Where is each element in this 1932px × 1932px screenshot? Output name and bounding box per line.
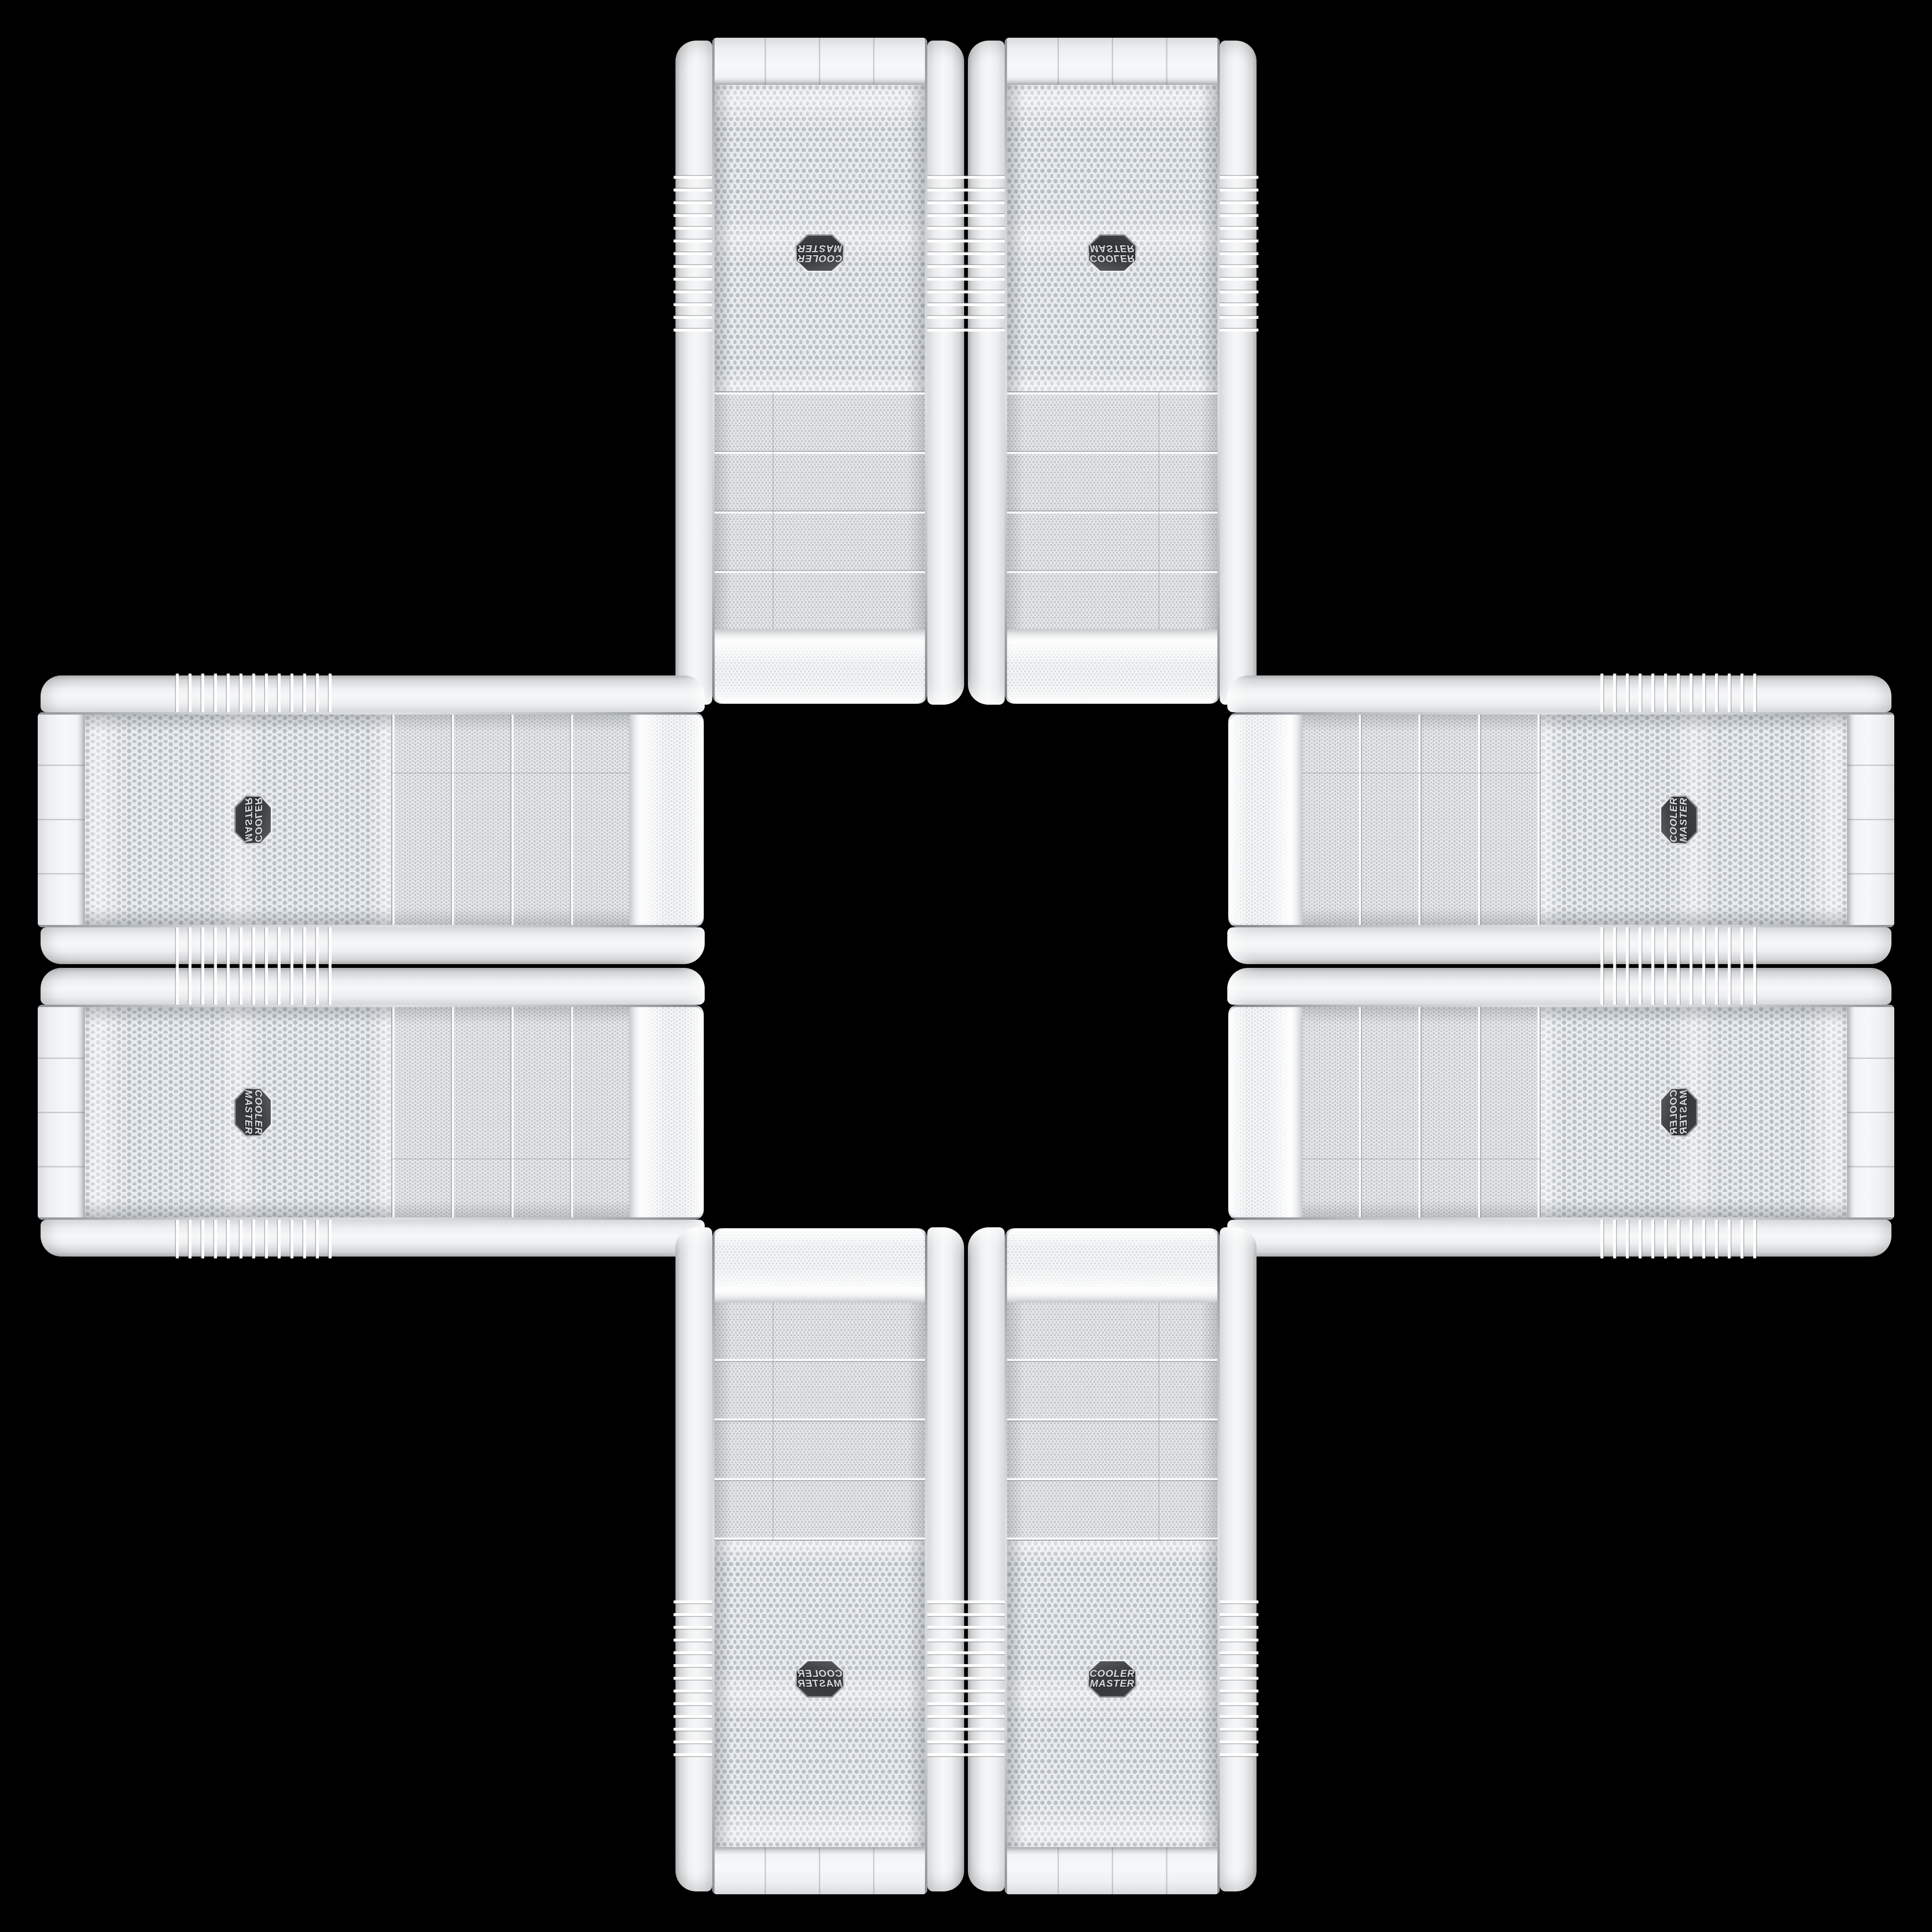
- side-rail-right: [675, 41, 712, 705]
- rail-grip-ribs: [1594, 674, 1762, 714]
- drive-bay-mesh: [391, 1007, 629, 1217]
- rail-grip-ribs: [170, 925, 338, 966]
- foot-band: [1847, 1005, 1894, 1220]
- mesh-top-cap: [628, 715, 704, 925]
- badge-text-line1: COOLER: [1090, 253, 1135, 263]
- badge-text-line2: MASTER: [1679, 1090, 1689, 1135]
- foot-band: [1005, 1847, 1220, 1894]
- cooler-master-badge: COOLER MASTER: [1661, 797, 1696, 843]
- chrome-trim-left: [38, 1005, 704, 1007]
- mesh-top-cap: [1228, 1007, 1304, 1217]
- side-rail-right: [1220, 41, 1257, 705]
- side-rail-left: [927, 1227, 964, 1891]
- fan-mesh: COOLER MASTER: [1541, 1007, 1847, 1217]
- foot-band: [1847, 712, 1894, 927]
- side-rail-right: [675, 1227, 712, 1891]
- front-panel: COOLER MASTER: [1005, 1228, 1220, 1894]
- drive-bay-mesh: [1303, 1007, 1541, 1217]
- side-rail-right: [41, 675, 705, 712]
- rail-grip-ribs: [1594, 1218, 1762, 1258]
- chrome-trim-right: [1217, 1228, 1220, 1894]
- badge-text-line2: MASTER: [243, 1090, 253, 1135]
- rail-grip-ribs: [674, 170, 714, 338]
- bay-seam: [773, 391, 774, 629]
- cooler-master-logo: COOLER MASTER: [1660, 795, 1698, 844]
- fan-mesh: COOLER MASTER: [715, 85, 925, 391]
- cooler-master-logo: COOLER MASTER: [1660, 1088, 1698, 1137]
- badge-text-line2: MASTER: [798, 243, 842, 253]
- side-rail-left: [41, 927, 705, 964]
- rail-grip-ribs: [925, 170, 966, 338]
- badge-text-line2: MASTER: [798, 1679, 842, 1689]
- rail-grip-ribs: [925, 1594, 966, 1762]
- fan-mesh: COOLER MASTER: [1007, 85, 1217, 391]
- side-rail-left: [1227, 927, 1891, 964]
- pc-case-left-top: COOLER MASTER: [38, 675, 708, 964]
- badge-text-line2: MASTER: [1090, 1679, 1135, 1689]
- side-rail-left: [968, 1227, 1005, 1891]
- foot-band: [712, 1847, 927, 1894]
- front-panel: COOLER MASTER: [1228, 712, 1894, 927]
- chrome-trim-left: [1228, 925, 1894, 927]
- badge-text-line1: COOLER: [1669, 797, 1679, 842]
- cooler-master-badge: COOLER MASTER: [797, 1661, 843, 1696]
- chrome-trim-left: [1005, 38, 1007, 704]
- pc-case-left-bottom: COOLER MASTER: [38, 968, 708, 1257]
- cooler-master-badge: COOLER MASTER: [236, 1089, 271, 1135]
- drive-bay-mesh: [1007, 1303, 1217, 1541]
- badge-text-line2: MASTER: [1090, 243, 1135, 253]
- cooler-master-logo: COOLER MASTER: [795, 234, 844, 272]
- pc-case-right-top: COOLER MASTER: [1224, 675, 1894, 964]
- chrome-trim-left: [1228, 1005, 1894, 1007]
- chrome-trim-right: [1228, 712, 1894, 715]
- rail-grip-ribs: [1594, 966, 1762, 1007]
- chrome-trim-left: [38, 925, 704, 927]
- pc-case-bottom-right: COOLER MASTER: [968, 1224, 1257, 1894]
- fan-mesh: COOLER MASTER: [1541, 715, 1847, 925]
- rail-grip-ribs: [170, 674, 338, 714]
- mesh-top-cap: [715, 1228, 925, 1304]
- bay-seam: [391, 1158, 629, 1159]
- drive-bay-mesh: [391, 715, 629, 925]
- pc-case-right-bottom: COOLER MASTER: [1224, 968, 1894, 1257]
- bay-seam: [391, 773, 629, 774]
- rail-grip-ribs: [1594, 925, 1762, 966]
- chrome-trim-left: [925, 38, 927, 704]
- foot-band: [1005, 38, 1220, 85]
- cooler-master-logo: COOLER MASTER: [234, 1088, 272, 1137]
- pc-case-top-left: COOLER MASTER: [675, 38, 964, 708]
- drive-bay-mesh: [715, 1303, 925, 1541]
- mesh-top-cap: [715, 628, 925, 704]
- side-rail-right: [1220, 1227, 1257, 1891]
- chrome-trim-right: [712, 38, 715, 704]
- rail-grip-ribs: [966, 1594, 1007, 1762]
- fan-mesh: COOLER MASTER: [85, 715, 391, 925]
- rail-grip-ribs: [170, 966, 338, 1007]
- cooler-master-badge: COOLER MASTER: [1089, 1661, 1135, 1696]
- drive-bay-mesh: [1303, 715, 1541, 925]
- front-panel: COOLER MASTER: [1005, 38, 1220, 704]
- chrome-trim-right: [1228, 1217, 1894, 1220]
- fan-mesh: COOLER MASTER: [85, 1007, 391, 1217]
- bay-seam: [1158, 1303, 1159, 1541]
- pc-case-top-right: COOLER MASTER: [968, 38, 1257, 708]
- drive-bay-mesh: [715, 391, 925, 629]
- badge-text-line1: COOLER: [797, 1669, 842, 1679]
- badge-text-line2: MASTER: [1679, 798, 1689, 842]
- foot-band: [38, 1005, 85, 1220]
- front-panel: COOLER MASTER: [712, 38, 927, 704]
- side-rail-left: [968, 41, 1005, 705]
- side-rail-left: [927, 41, 964, 705]
- side-rail-right: [1227, 1220, 1891, 1257]
- side-rail-right: [41, 1220, 705, 1257]
- badge-text-line1: COOLER: [1090, 1669, 1135, 1679]
- front-panel: COOLER MASTER: [1228, 1005, 1894, 1220]
- rail-grip-ribs: [674, 1594, 714, 1762]
- bay-seam: [1303, 773, 1541, 774]
- mesh-top-cap: [1228, 715, 1304, 925]
- bay-seam: [1303, 1158, 1541, 1159]
- cooler-master-logo: COOLER MASTER: [234, 795, 272, 844]
- mesh-top-cap: [628, 1007, 704, 1217]
- badge-text-line1: COOLER: [253, 1090, 263, 1135]
- badge-text-line1: COOLER: [1669, 1090, 1679, 1135]
- cooler-master-logo: COOLER MASTER: [1088, 234, 1137, 272]
- chrome-trim-left: [925, 1228, 927, 1894]
- badge-text-line1: COOLER: [797, 253, 842, 263]
- mesh-top-cap: [1007, 1228, 1217, 1304]
- bay-seam: [1158, 391, 1159, 629]
- cooler-master-badge: COOLER MASTER: [236, 797, 271, 843]
- drive-bay-mesh: [1007, 391, 1217, 629]
- badge-text-line1: COOLER: [253, 797, 263, 842]
- mesh-top-cap: [1007, 628, 1217, 704]
- cooler-master-logo: COOLER MASTER: [1088, 1660, 1137, 1698]
- rail-grip-ribs: [966, 170, 1007, 338]
- chrome-trim-right: [38, 712, 704, 715]
- front-panel: COOLER MASTER: [712, 1228, 927, 1894]
- cooler-master-badge: COOLER MASTER: [797, 236, 843, 271]
- side-rail-left: [1227, 968, 1891, 1005]
- pc-case-bottom-left: COOLER MASTER: [675, 1224, 964, 1894]
- badge-text-line2: MASTER: [243, 798, 253, 842]
- fan-mesh: COOLER MASTER: [1007, 1541, 1217, 1847]
- cooler-master-logo: COOLER MASTER: [795, 1660, 844, 1698]
- side-rail-right: [1227, 675, 1891, 712]
- chrome-trim-right: [712, 1228, 715, 1894]
- front-panel: COOLER MASTER: [38, 712, 704, 927]
- black-backdrop: COOLER MASTER COOLER MASTER: [0, 0, 1932, 1932]
- cooler-master-badge: COOLER MASTER: [1089, 236, 1135, 271]
- fan-mesh: COOLER MASTER: [715, 1541, 925, 1847]
- chrome-trim-left: [1005, 1228, 1007, 1894]
- bay-seam: [773, 1303, 774, 1541]
- chrome-trim-right: [1217, 38, 1220, 704]
- foot-band: [38, 712, 85, 927]
- foot-band: [712, 38, 927, 85]
- side-rail-left: [41, 968, 705, 1005]
- rail-grip-ribs: [1218, 1594, 1258, 1762]
- front-panel: COOLER MASTER: [38, 1005, 704, 1220]
- cooler-master-badge: COOLER MASTER: [1661, 1089, 1696, 1135]
- rail-grip-ribs: [170, 1218, 338, 1258]
- chrome-trim-right: [38, 1217, 704, 1220]
- rail-grip-ribs: [1218, 170, 1258, 338]
